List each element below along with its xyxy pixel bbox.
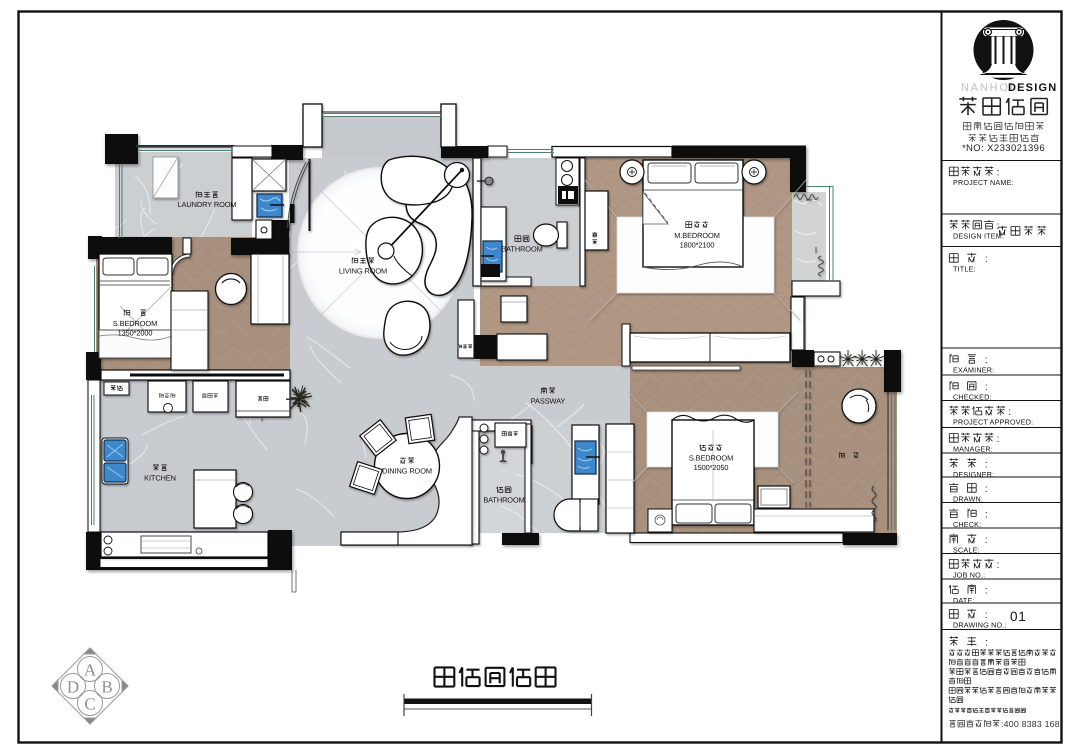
svg-text:1500*2050: 1500*2050 <box>694 463 729 472</box>
svg-text:DRAWN:: DRAWN: <box>953 495 983 504</box>
svg-text::: : <box>997 167 1000 179</box>
svg-text::: : <box>985 534 988 546</box>
svg-text:M.BEDROOM: M.BEDROOM <box>674 231 720 240</box>
svg-text:*NO: X233021396: *NO: X233021396 <box>962 143 1045 154</box>
svg-text:D: D <box>67 678 79 697</box>
svg-text:JOB NO.:: JOB NO.: <box>953 571 985 580</box>
svg-text:C: C <box>84 695 95 714</box>
svg-text:CHECKED:: CHECKED: <box>953 393 992 402</box>
svg-text:DATE:: DATE: <box>953 596 975 605</box>
svg-text:CHECK:: CHECK: <box>953 520 981 529</box>
svg-text:TITLE:: TITLE: <box>953 265 976 274</box>
svg-text::: : <box>997 220 1000 232</box>
svg-text:B: B <box>101 678 112 697</box>
svg-text:S.BEDROOM: S.BEDROOM <box>689 454 733 463</box>
svg-text:PASSWAY: PASSWAY <box>531 397 566 406</box>
svg-text::: : <box>985 354 988 366</box>
svg-text:DESIGN: DESIGN <box>1008 82 1057 94</box>
svg-text::: : <box>985 483 988 495</box>
svg-text::: : <box>985 637 988 649</box>
svg-text:BATHROOM: BATHROOM <box>501 245 542 254</box>
svg-text:PROJECT NAME:: PROJECT NAME: <box>953 178 1014 187</box>
svg-text:BATHROOM: BATHROOM <box>483 496 524 505</box>
svg-text:PROJECT APPROVED:: PROJECT APPROVED: <box>953 418 1033 427</box>
svg-text:A: A <box>84 661 97 680</box>
svg-text:1800*2100: 1800*2100 <box>680 241 715 250</box>
svg-text::: : <box>985 459 988 471</box>
svg-text:MANAGER:: MANAGER: <box>953 445 993 454</box>
svg-text:KITCHEN: KITCHEN <box>144 474 176 483</box>
svg-text::: : <box>985 509 988 521</box>
svg-text:LAUNDRY ROOM: LAUNDRY ROOM <box>178 200 237 209</box>
svg-text:DRAWING NO.:: DRAWING NO.: <box>953 621 1007 630</box>
svg-text:1350*2000: 1350*2000 <box>118 329 153 338</box>
svg-text:EXAMINER:: EXAMINER: <box>953 366 994 375</box>
svg-text:SCALE:: SCALE: <box>953 546 980 555</box>
svg-text::: : <box>1008 406 1011 418</box>
svg-text::: : <box>985 253 988 265</box>
svg-text:DESIGNER:: DESIGNER: <box>953 470 994 479</box>
svg-text:DINING ROOM: DINING ROOM <box>382 467 432 476</box>
svg-text:NANHOI: NANHOI <box>961 82 1015 94</box>
svg-text::: : <box>985 609 988 621</box>
svg-text:01: 01 <box>1010 609 1027 624</box>
svg-text::: : <box>985 381 988 393</box>
svg-text:LIVING ROOM: LIVING ROOM <box>339 267 387 276</box>
svg-text::400 8383 168: :400 8383 168 <box>1001 719 1060 729</box>
svg-text::: : <box>997 433 1000 445</box>
svg-text::: : <box>997 559 1000 571</box>
svg-text:DESIGN ITEM:: DESIGN ITEM: <box>953 232 1004 241</box>
svg-text:S.BEDROOM: S.BEDROOM <box>113 319 157 328</box>
svg-text::: : <box>985 585 988 597</box>
